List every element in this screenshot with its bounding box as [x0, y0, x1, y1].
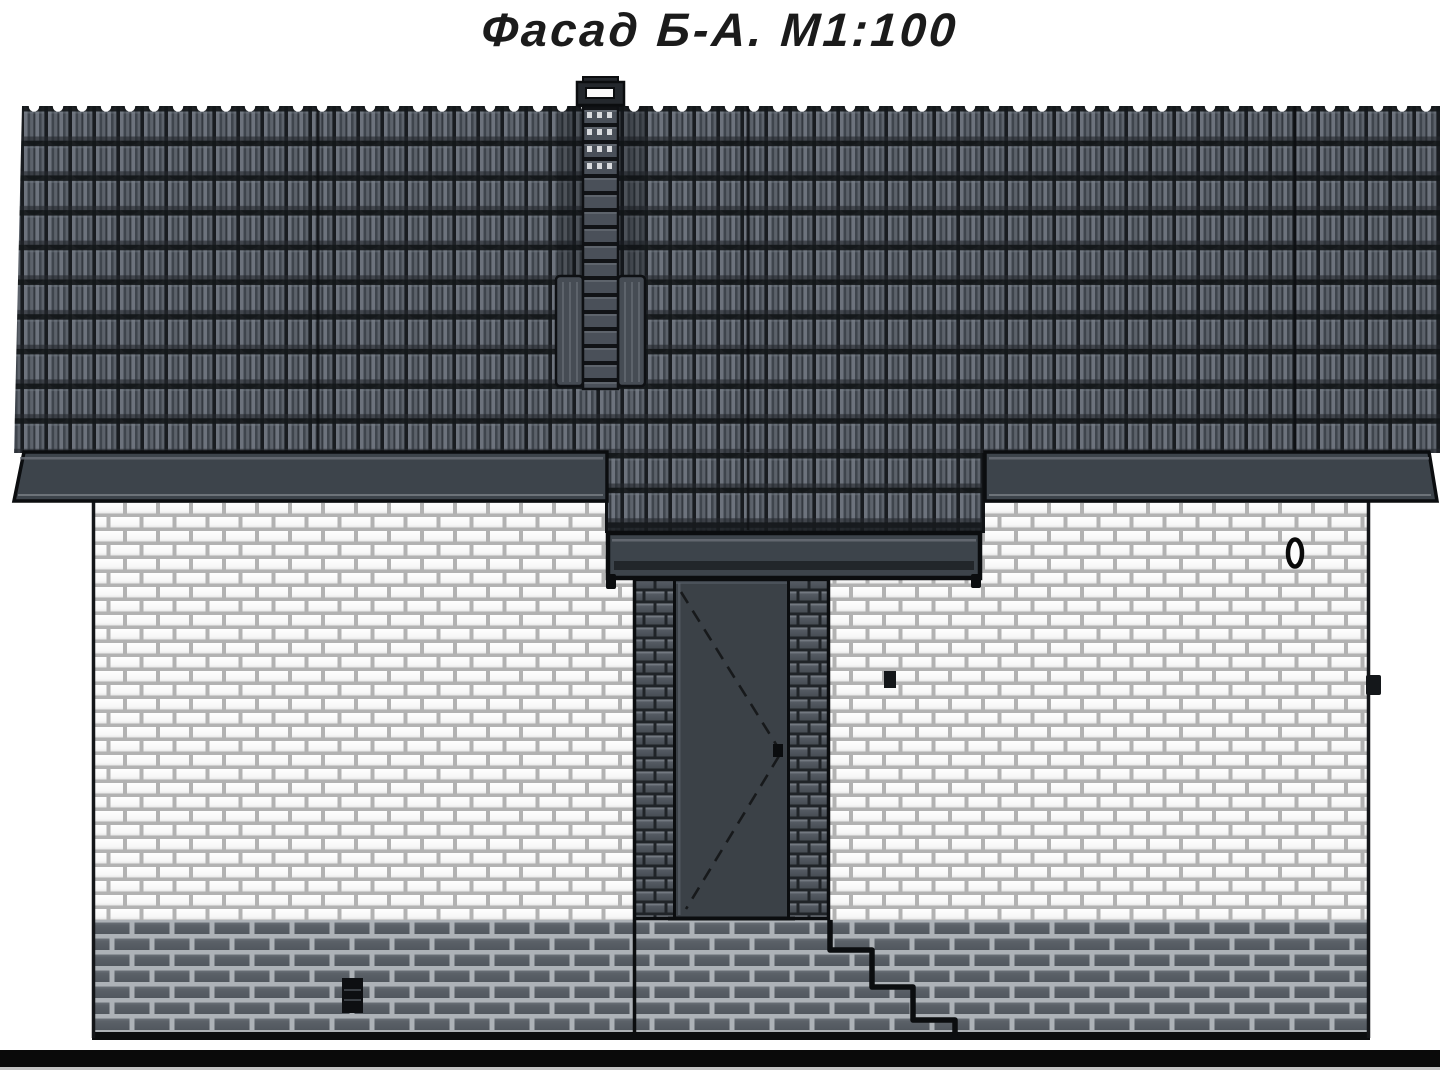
door-handle — [773, 744, 783, 757]
door-pier-right — [790, 578, 830, 920]
air-vent-ring — [1288, 540, 1302, 567]
entrance-door — [676, 581, 787, 917]
plinth-vent — [342, 978, 363, 1013]
porch-fascia-drip-right — [971, 574, 981, 588]
plinth — [92, 920, 1370, 1040]
wall-anchor-right — [884, 671, 896, 688]
ground-line — [0, 1050, 1440, 1070]
plinth-bottom-outline — [92, 1032, 1370, 1040]
roof-ridge-notches — [20, 106, 1440, 117]
chimney-cap — [577, 77, 624, 105]
wall-edge-knob — [1366, 675, 1381, 695]
chimney-cap-vent-slot — [586, 88, 614, 98]
porch-fascia-drip-left — [606, 574, 616, 589]
facade-drawing-page: Фасад Б-А. М1:100 — [0, 0, 1440, 1080]
door-pier-left — [633, 578, 673, 920]
facade-elevation-drawing — [0, 0, 1440, 1080]
main-roof — [14, 106, 1440, 453]
